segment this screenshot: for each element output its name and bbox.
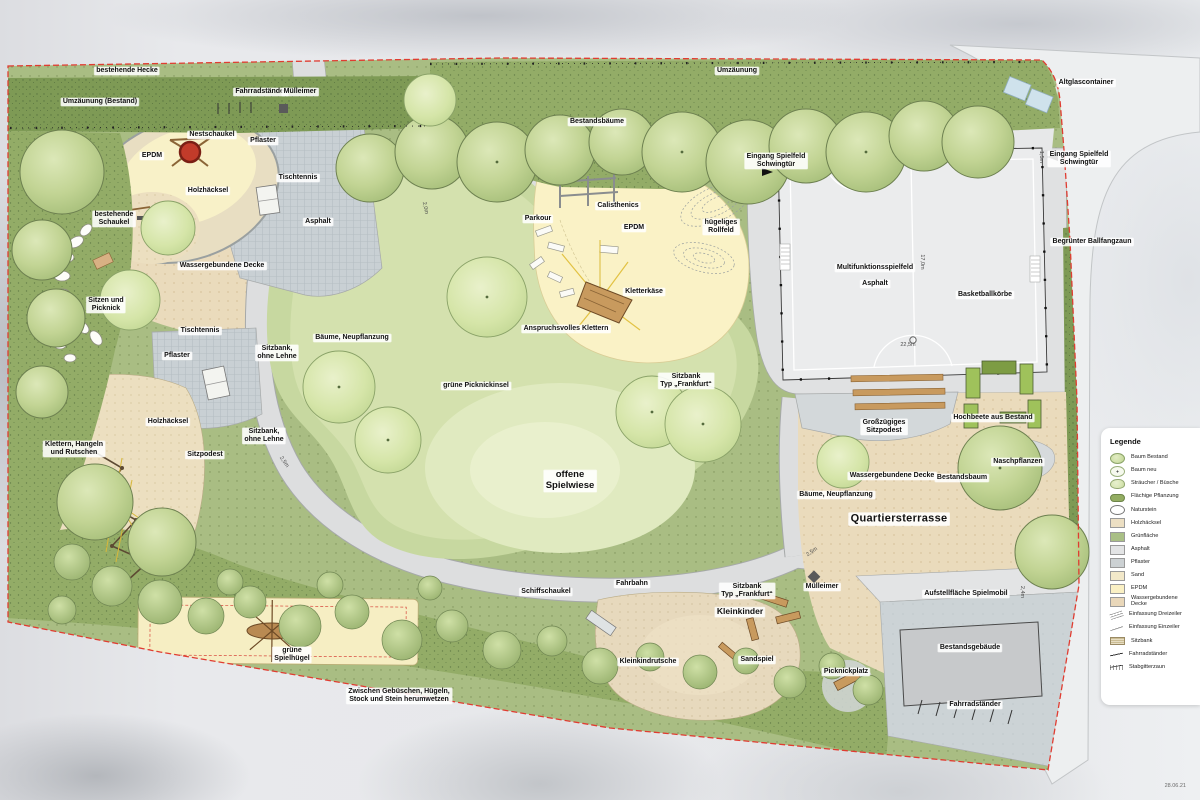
swatch-icon [1110,532,1125,542]
legend-item-15: Fahrradständer [1110,649,1193,659]
sports-field [778,148,1047,380]
edging-three-icon [1109,610,1123,620]
legend-item-label: Sitzbank [1131,639,1152,645]
legend-item-12: Einfassung Dreizeiler [1110,610,1193,620]
legend-item-8: Pflaster [1110,558,1193,568]
legend-item-label: Naturstein [1131,508,1157,514]
swatch-icon [1110,518,1125,528]
legend-item-label: EPDM [1131,586,1147,592]
legend-item-label: Einfassung Einzeiler [1129,625,1180,631]
legend-panel: Legende Baum BestandBaum neuSträucher / … [1101,428,1200,705]
date-stamp: 28.06.21 [1165,783,1186,789]
legend-items: Baum BestandBaum neuSträucher / BüscheFl… [1110,453,1193,673]
legend-item-label: Grünfläche [1131,534,1158,540]
legend-title: Legende [1110,437,1193,446]
swatch-icon [1110,584,1125,594]
swatch-icon [1110,571,1125,581]
swatch-icon [1110,597,1125,607]
legend-item-label: Stabgitterzaun [1129,665,1165,671]
edging-one-icon [1110,625,1123,631]
site-plan-canvas: bestehende HeckeUmzäunung (Bestand)Fahrr… [0,0,1200,800]
hedge-top-left [8,76,430,133]
legend-item-label: Asphalt [1131,547,1150,553]
shrub-icon [1110,479,1125,489]
legend-item-16: Stabgitterzaun [1110,663,1193,673]
legend-item-2: Sträucher / Büsche [1110,479,1193,489]
site-plan-drawing [0,0,1200,800]
legend-item-label: Wassergebundene Decke [1131,596,1193,607]
legend-item-label: Sträucher / Büsche [1131,481,1179,487]
tree-new-icon [1110,466,1125,477]
legend-item-13: Einfassung Einzeiler [1110,623,1193,633]
legend-item-1: Baum neu [1110,466,1193,476]
planting-icon [1110,494,1125,502]
legend-item-0: Baum Bestand [1110,453,1193,463]
legend-item-label: Fahrradständer [1129,652,1167,658]
legend-item-label: Flächige Pflanzung [1131,494,1179,500]
tree-existing-icon [1110,453,1125,464]
bottom-right-area [856,566,1079,766]
fence-icon [1110,665,1123,670]
legend-item-5: Holzhäcksel [1110,518,1193,528]
legend-item-4: Naturstein [1110,505,1193,515]
legend-item-7: Asphalt [1110,545,1193,555]
bench-icon [1110,637,1125,645]
legend-item-9: Sand [1110,571,1193,581]
legend-item-label: Holzhäcksel [1131,521,1161,527]
legend-item-14: Sitzbank [1110,636,1193,646]
legend-item-label: Einfassung Dreizeiler [1129,612,1182,618]
swatch-icon [1110,545,1125,555]
legend-item-label: Pflaster [1131,560,1150,566]
bike-rack-icon [1110,652,1123,658]
stone-icon [1110,505,1125,515]
legend-item-6: Grünfläche [1110,532,1193,542]
legend-item-11: Wassergebundene Decke [1110,597,1193,607]
legend-item-label: Baum neu [1131,468,1157,474]
legend-item-label: Baum Bestand [1131,455,1168,461]
legend-item-label: Sand [1131,573,1144,579]
swatch-icon [1110,558,1125,568]
legend-item-3: Flächige Pflanzung [1110,492,1193,502]
legend-item-10: EPDM [1110,584,1193,594]
